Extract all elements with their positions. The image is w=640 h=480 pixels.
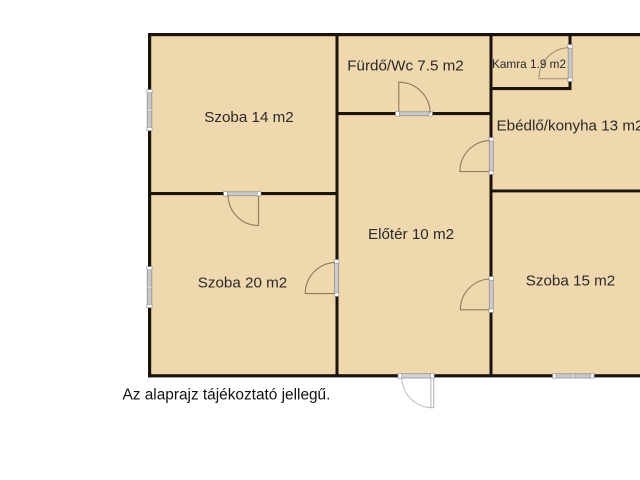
svg-text:Szoba 15 m2: Szoba 15 m2 [526, 273, 616, 290]
svg-text:Szoba 20 m2: Szoba 20 m2 [198, 275, 288, 292]
svg-text:Előtér 10 m2: Előtér 10 m2 [368, 226, 454, 243]
svg-text:Kamra 1.9 m2: Kamra 1.9 m2 [492, 57, 566, 71]
svg-text:Ebédlő/konyha 13 m2: Ebédlő/konyha 13 m2 [497, 118, 640, 135]
svg-text:Az alaprajz tájékoztató jelleg: Az alaprajz tájékoztató jellegű. [123, 387, 331, 404]
svg-text:Szoba 14 m2: Szoba 14 m2 [204, 109, 294, 126]
svg-text:Fürdő/Wc 7.5 m2: Fürdő/Wc 7.5 m2 [347, 58, 463, 75]
